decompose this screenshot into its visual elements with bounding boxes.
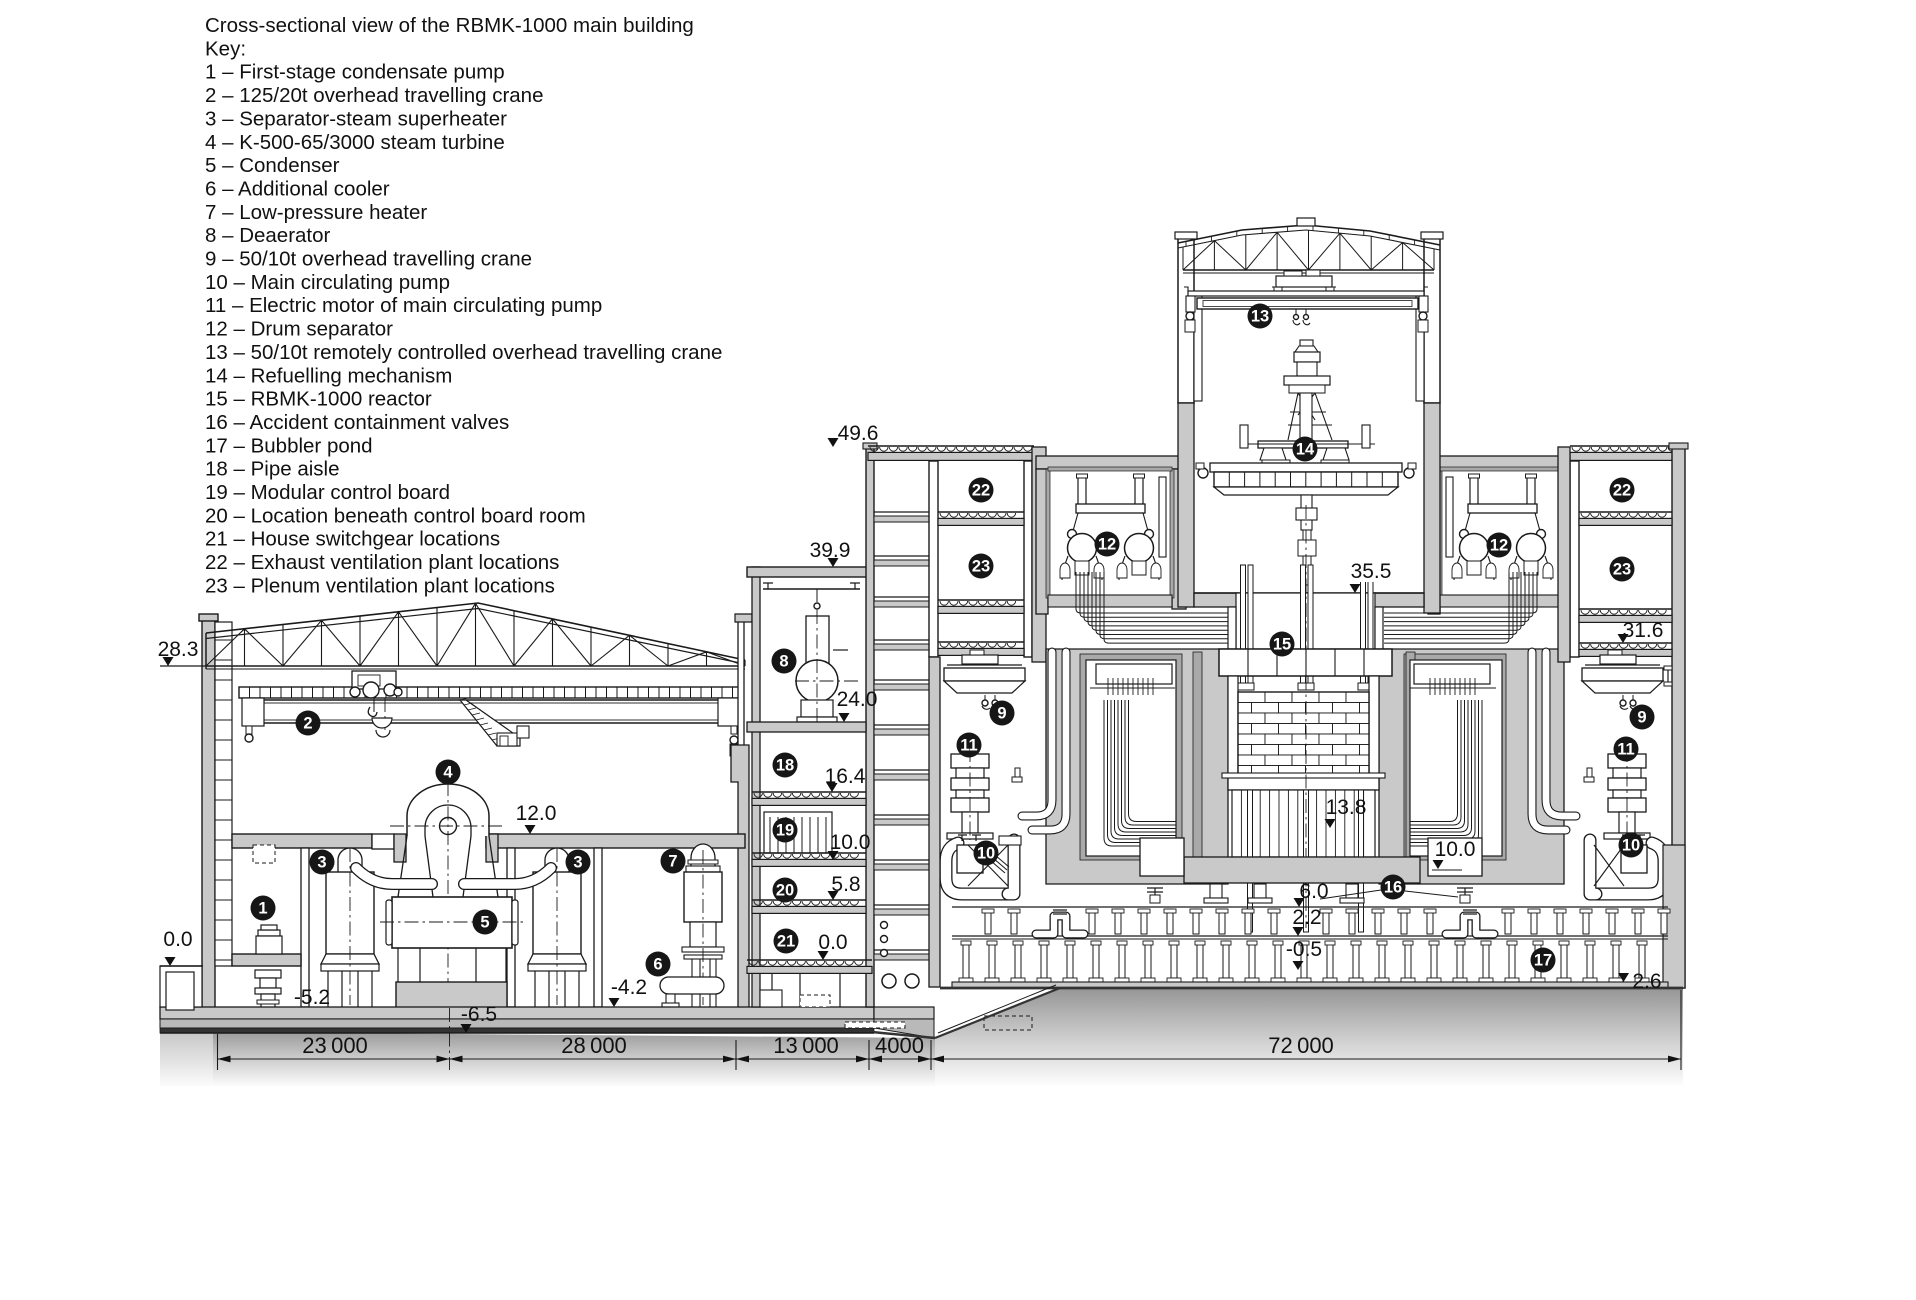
svg-text:15 – RBMK-1000 reactor: 15 – RBMK-1000 reactor — [205, 388, 432, 411]
svg-text:16: 16 — [1384, 879, 1402, 897]
svg-text:7 – Low-pressure heater: 7 – Low-pressure heater — [205, 201, 427, 224]
svg-text:72 000: 72 000 — [1268, 1033, 1334, 1058]
svg-text:Cross-sectional view of the RB: Cross-sectional view of the RBMK-1000 ma… — [205, 14, 694, 37]
svg-text:11: 11 — [1617, 741, 1634, 759]
svg-text:10 – Main circulating pump: 10 – Main circulating pump — [205, 271, 450, 294]
svg-text:2: 2 — [303, 715, 312, 733]
svg-text:31.6: 31.6 — [1623, 619, 1664, 642]
svg-text:22: 22 — [1613, 482, 1631, 500]
svg-text:12: 12 — [1490, 537, 1508, 555]
svg-text:15: 15 — [1273, 636, 1291, 654]
svg-text:13 – 50/10t remotely controlle: 13 – 50/10t remotely controlled overhead… — [205, 341, 722, 364]
svg-text:3 – Separator-steam superheate: 3 – Separator-steam superheater — [205, 107, 507, 130]
svg-text:10.0: 10.0 — [830, 831, 871, 854]
svg-text:11 – Electric motor of main ci: 11 – Electric motor of main circulating … — [205, 294, 602, 317]
svg-text:3: 3 — [573, 854, 582, 872]
svg-text:11: 11 — [960, 737, 977, 755]
svg-text:21 – House switchgear location: 21 – House switchgear locations — [205, 528, 500, 551]
svg-text:3: 3 — [317, 854, 326, 872]
svg-text:5: 5 — [480, 914, 489, 932]
svg-text:8: 8 — [779, 653, 788, 671]
svg-text:6 – Additional cooler: 6 – Additional cooler — [205, 177, 390, 200]
svg-text:49.6: 49.6 — [838, 422, 879, 445]
svg-text:4: 4 — [443, 764, 453, 782]
svg-text:7: 7 — [668, 853, 677, 871]
svg-text:35.5: 35.5 — [1351, 560, 1392, 583]
svg-text:10: 10 — [1622, 837, 1640, 855]
svg-text:12: 12 — [1098, 536, 1116, 554]
svg-text:8 – Deaerator: 8 – Deaerator — [205, 224, 331, 247]
svg-text:0.0: 0.0 — [163, 928, 192, 951]
svg-text:16 – Accident containment valv: 16 – Accident containment valves — [205, 411, 509, 434]
svg-text:13.8: 13.8 — [1326, 796, 1367, 819]
svg-text:9: 9 — [997, 705, 1006, 723]
svg-text:13 000: 13 000 — [773, 1033, 839, 1058]
svg-text:23: 23 — [1613, 561, 1631, 579]
svg-text:Key:: Key: — [205, 37, 246, 60]
svg-text:1 – First-stage condensate pum: 1 – First-stage condensate pump — [205, 61, 505, 84]
svg-text:13: 13 — [1251, 308, 1269, 326]
svg-text:19 – Modular control board: 19 – Modular control board — [205, 481, 450, 504]
svg-text:9 – 50/10t overhead travelling: 9 – 50/10t overhead travelling crane — [205, 248, 532, 271]
svg-text:6.0: 6.0 — [1299, 880, 1328, 903]
svg-text:6: 6 — [653, 956, 662, 974]
svg-text:12 – Drum separator: 12 – Drum separator — [205, 318, 393, 341]
svg-text:10.0: 10.0 — [1435, 838, 1476, 861]
svg-text:4000: 4000 — [875, 1033, 924, 1058]
svg-text:20: 20 — [776, 882, 794, 900]
svg-text:19: 19 — [776, 822, 794, 840]
svg-text:0.0: 0.0 — [818, 931, 847, 954]
svg-text:14 – Refuelling mechanism: 14 – Refuelling mechanism — [205, 364, 452, 387]
svg-text:2.2: 2.2 — [1292, 906, 1321, 929]
svg-text:2 – 125/20t overhead travellin: 2 – 125/20t overhead travelling crane — [205, 84, 543, 107]
svg-text:23 – Plenum ventilation plant: 23 – Plenum ventilation plant locations — [205, 574, 555, 597]
svg-text:-5.2: -5.2 — [294, 986, 330, 1009]
svg-text:12.0: 12.0 — [516, 802, 557, 825]
svg-text:22 – Exhaust ventilation plant: 22 – Exhaust ventilation plant locations — [205, 551, 559, 574]
svg-text:21: 21 — [777, 933, 795, 951]
svg-text:18: 18 — [776, 757, 794, 775]
svg-text:-6.5: -6.5 — [461, 1003, 497, 1026]
svg-text:23: 23 — [972, 558, 990, 576]
svg-text:2.6: 2.6 — [1632, 970, 1661, 993]
svg-text:5 – Condenser: 5 – Condenser — [205, 154, 340, 177]
svg-text:22: 22 — [972, 482, 990, 500]
svg-text:20 – Location beneath control: 20 – Location beneath control board room — [205, 504, 586, 527]
svg-text:18 – Pipe aisle: 18 – Pipe aisle — [205, 458, 339, 481]
svg-text:9: 9 — [1637, 709, 1646, 727]
svg-text:4 – K-500-65/3000 steam turbin: 4 – K-500-65/3000 steam turbine — [205, 131, 505, 154]
svg-text:24.0: 24.0 — [837, 688, 878, 711]
svg-text:1: 1 — [258, 900, 267, 918]
svg-text:-4.2: -4.2 — [611, 976, 647, 999]
svg-text:17: 17 — [1534, 952, 1552, 970]
svg-text:23 000: 23 000 — [302, 1033, 368, 1058]
svg-text:14: 14 — [1296, 441, 1315, 459]
svg-text:28 000: 28 000 — [561, 1033, 627, 1058]
svg-text:10: 10 — [977, 845, 995, 863]
svg-text:17 – Bubbler pond: 17 – Bubbler pond — [205, 434, 373, 457]
svg-text:-0.5: -0.5 — [1286, 938, 1322, 961]
